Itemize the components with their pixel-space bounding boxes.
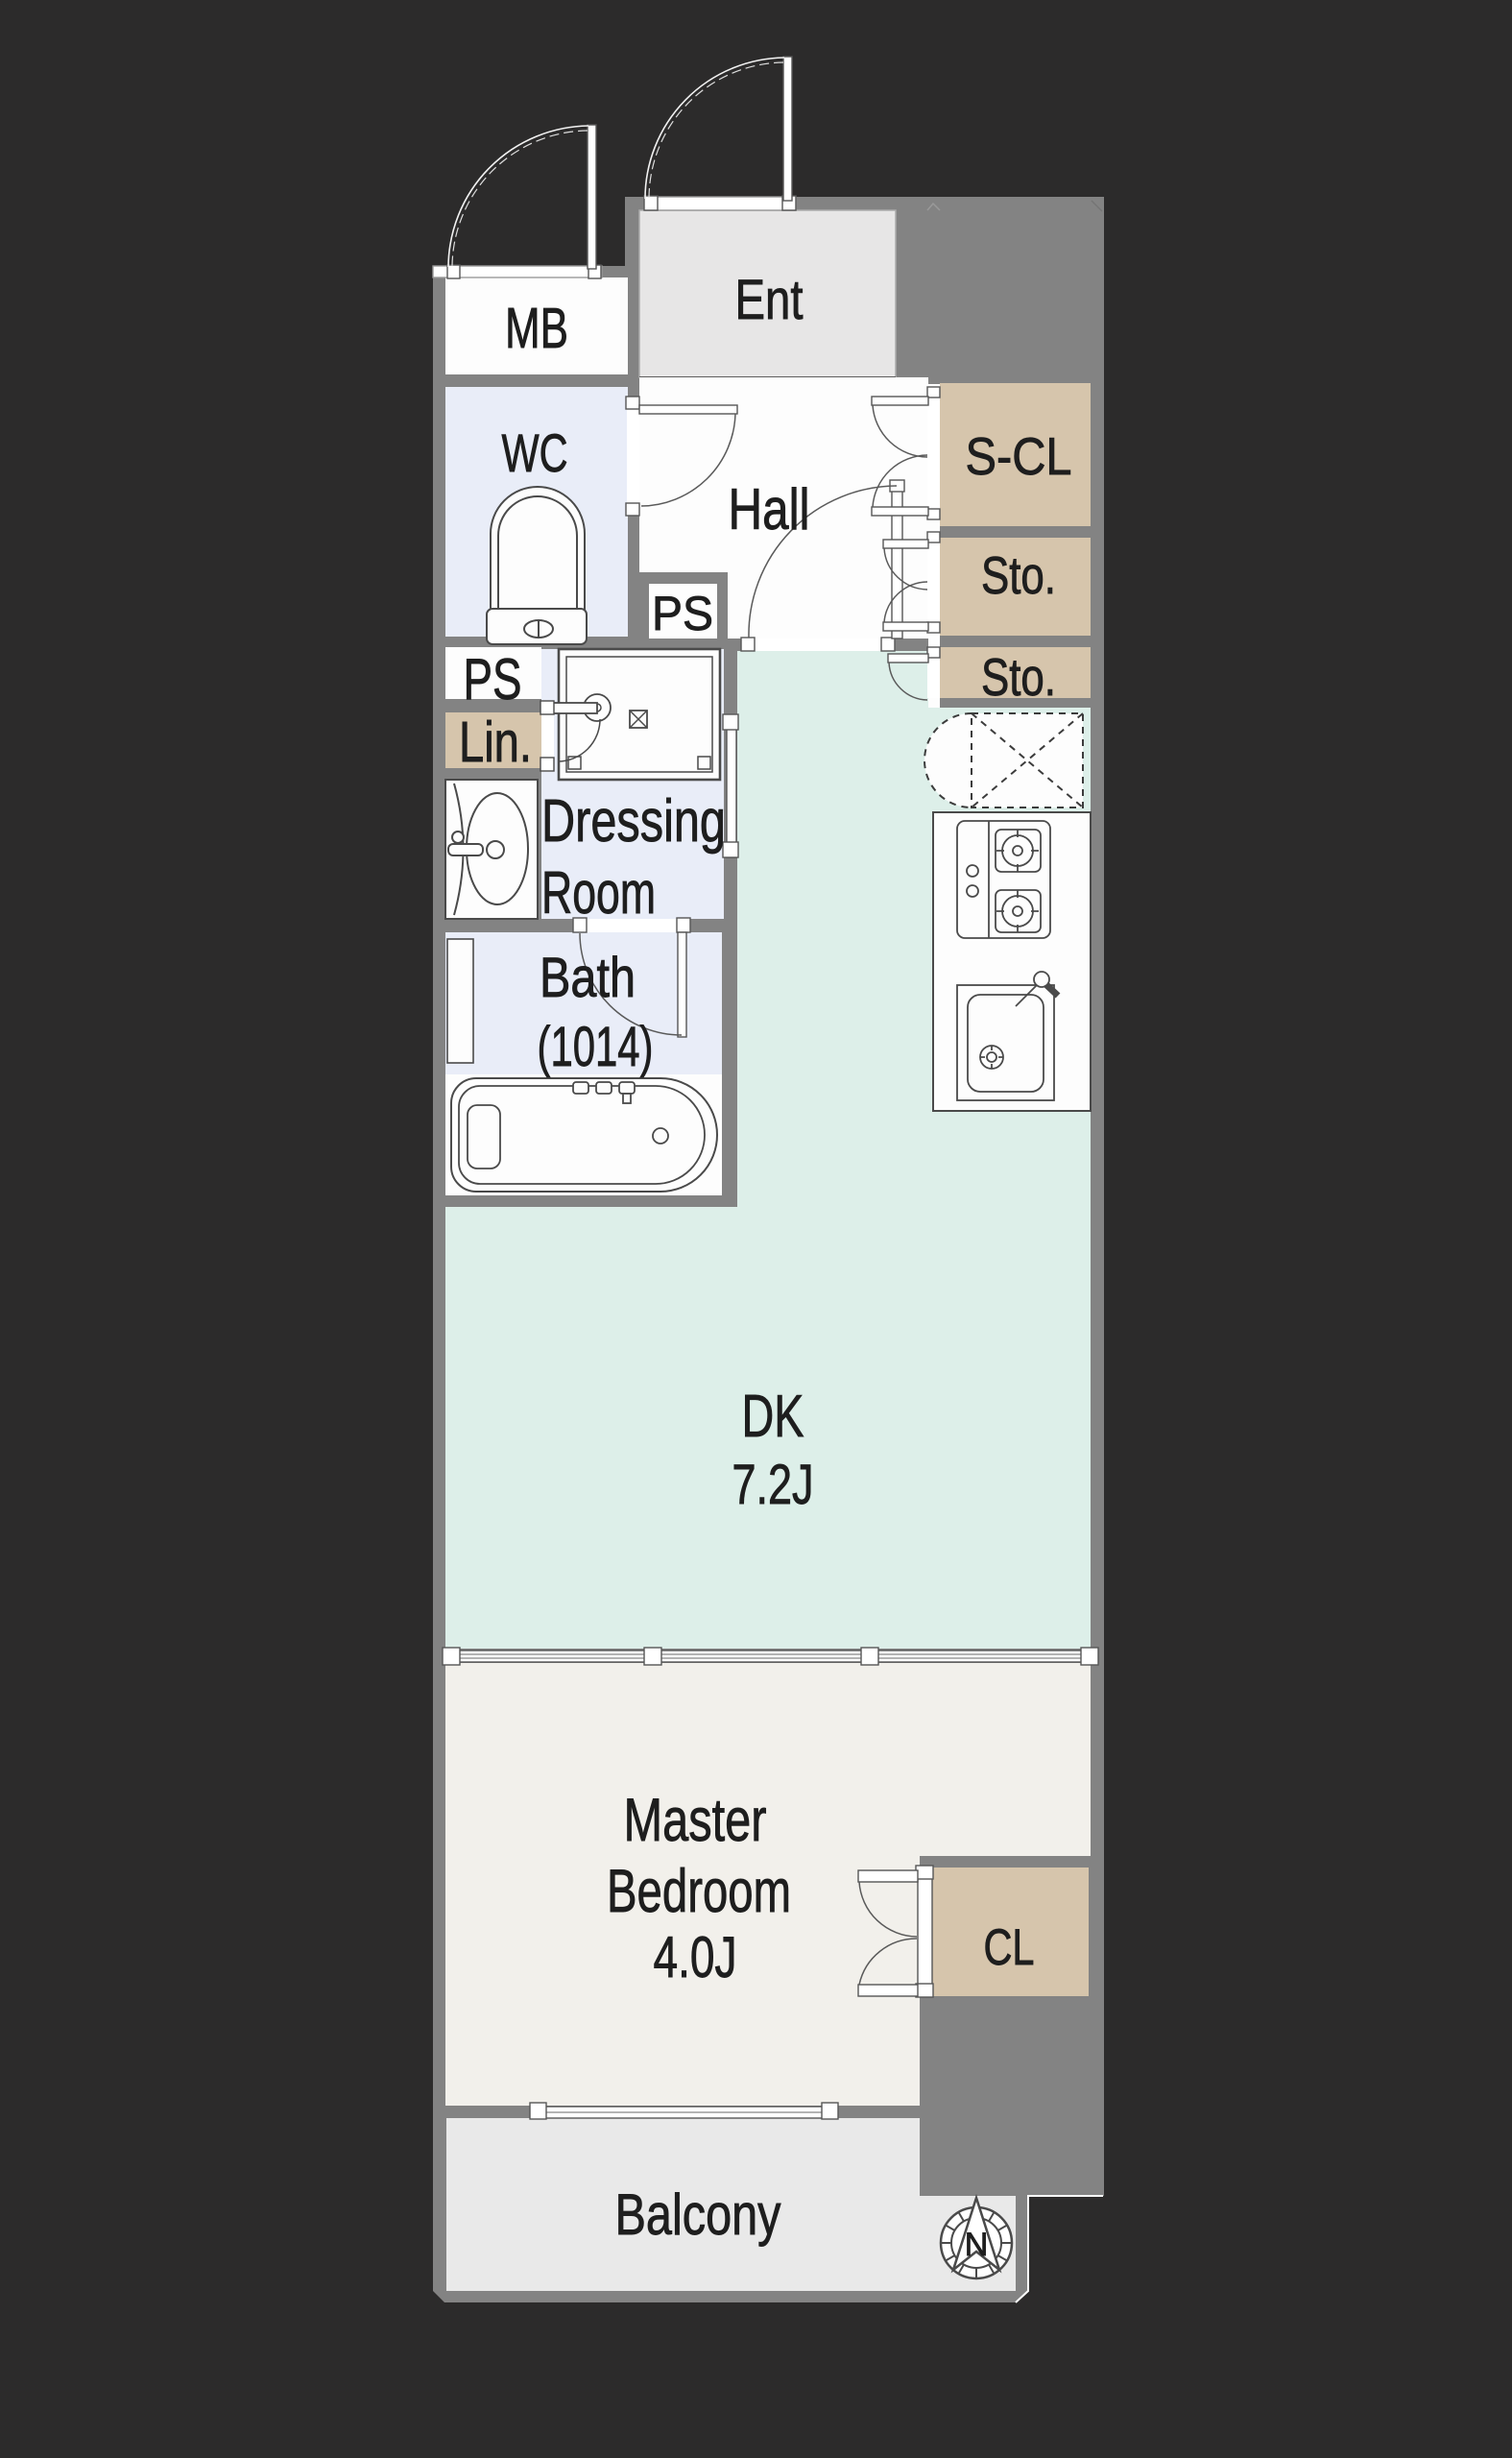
- svg-text:Sto.: Sto.: [981, 545, 1056, 605]
- svg-text:(1014): (1014): [538, 1016, 654, 1078]
- svg-text:DK: DK: [742, 1384, 804, 1450]
- svg-text:PS: PS: [652, 587, 713, 640]
- svg-text:4.0J: 4.0J: [654, 1925, 737, 1989]
- svg-text:Room: Room: [541, 860, 656, 927]
- svg-text:Dressing: Dressing: [541, 788, 726, 855]
- svg-text:PS: PS: [464, 647, 522, 711]
- svg-text:Bath: Bath: [540, 947, 636, 1009]
- svg-text:MB: MB: [505, 297, 568, 360]
- svg-text:Bedroom: Bedroom: [607, 1858, 791, 1925]
- svg-text:Hall: Hall: [729, 477, 810, 542]
- svg-text:S-CL: S-CL: [966, 426, 1072, 486]
- svg-text:Ent: Ent: [735, 269, 804, 331]
- svg-text:N: N: [965, 2227, 989, 2263]
- svg-text:CL: CL: [984, 1919, 1035, 1976]
- svg-text:Sto.: Sto.: [981, 647, 1056, 707]
- svg-text:WC: WC: [502, 422, 568, 483]
- svg-text:Balcony: Balcony: [615, 2182, 781, 2247]
- svg-text:Master: Master: [624, 1787, 767, 1854]
- svg-text:Lin.: Lin.: [459, 711, 532, 774]
- svg-text:7.2J: 7.2J: [732, 1454, 814, 1516]
